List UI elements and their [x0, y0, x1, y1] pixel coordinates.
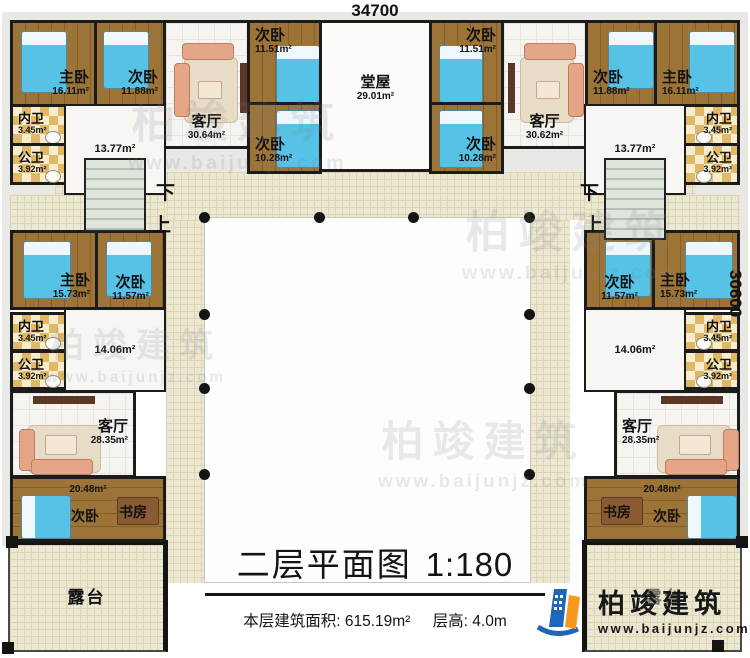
- staircase-right: [604, 158, 666, 240]
- coffee-table-icon: [679, 435, 711, 455]
- room-area: 3.92m²: [18, 372, 47, 382]
- dimension-top: 34700: [0, 1, 750, 21]
- wall-corner: [6, 536, 18, 548]
- tv-cabinet-icon: [33, 396, 95, 404]
- column: [524, 212, 535, 223]
- courtyard: [204, 217, 531, 583]
- room-name: 内卫: [18, 112, 44, 126]
- room-area: 30.64m²: [188, 130, 225, 141]
- room-living-right: 客厅28.35m²: [614, 390, 740, 478]
- column: [199, 309, 210, 320]
- floor-area-value: 615.19m²: [345, 613, 410, 630]
- sofa-icon: [665, 459, 727, 475]
- floor-area-label: 本层建筑面积:: [243, 613, 340, 630]
- stair-up-label: 上: [584, 210, 603, 237]
- room-name: 书房: [119, 505, 147, 519]
- room-study-bedroom-right: 20.48m² 书房 次卧: [584, 476, 740, 542]
- sofa-icon: [174, 63, 190, 117]
- bed-icon: [608, 31, 654, 89]
- room-name: 次卧: [653, 509, 681, 523]
- room-name: 内卫: [706, 112, 732, 126]
- stair-down-label: 下: [156, 178, 175, 205]
- room-bedroom2-left: 次卧11.57m²: [95, 230, 166, 310]
- brand-name: 柏竣建筑: [598, 591, 750, 618]
- floor-height-value: 4.0m: [472, 613, 506, 630]
- tv-cabinet-icon: [240, 63, 247, 113]
- plan-title-text: 二层平面图: [237, 546, 412, 583]
- room-name: 主卧: [662, 70, 692, 86]
- room-bath-inner-right: 内卫3.45m²: [683, 312, 740, 352]
- room-name: 客厅: [622, 419, 652, 435]
- bed-icon: [687, 495, 737, 539]
- plan-subtitle: 本层建筑面积: 615.19m² 层高: 4.0m: [205, 609, 545, 631]
- room-area: 28.35m²: [622, 435, 659, 446]
- bed-icon: [276, 45, 320, 103]
- stair-down-label: 下: [580, 178, 599, 205]
- column: [524, 383, 535, 394]
- wall-corner: [736, 536, 748, 548]
- room-area: 20.48m²: [69, 484, 106, 495]
- room-bedroom3-top-right: 次卧11.51m²: [429, 20, 504, 105]
- coffee-table-icon: [198, 81, 222, 99]
- sofa-icon: [182, 43, 234, 60]
- room-bedroom4-top-right: 次卧10.28m²: [429, 102, 504, 174]
- room-name: 堂屋: [360, 75, 390, 91]
- toilet-icon: [696, 337, 712, 350]
- room-bedroom3-top-left: 次卧11.51m²: [247, 20, 322, 105]
- room-bath-inner-top-left: 内卫3.45m²: [10, 104, 67, 146]
- corridor-right: [529, 220, 570, 583]
- bed-icon: [439, 110, 483, 168]
- room-bedroom2-top-right: 次卧11.88m²: [585, 20, 657, 107]
- room-area: 14.06m²: [615, 344, 656, 356]
- room-name: 次卧: [255, 28, 285, 44]
- terrace-left: 露台: [8, 540, 168, 652]
- wall-corner: [2, 642, 14, 654]
- room-name: 公卫: [18, 151, 44, 165]
- column: [199, 383, 210, 394]
- room-name: 书房: [603, 505, 631, 519]
- room-area: 29.01m²: [357, 91, 394, 102]
- coffee-table-icon: [45, 435, 77, 455]
- tv-cabinet-icon: [661, 396, 723, 404]
- title-block: 二层平面图1:180 本层建筑面积: 615.19m² 层高: 4.0m: [205, 538, 545, 631]
- room-bedroom2-right: 次卧11.57m²: [584, 230, 655, 310]
- room-area: 30.62m²: [526, 130, 563, 141]
- sofa-icon: [568, 63, 584, 117]
- room-bath-public-left: 公卫3.92m²: [10, 350, 67, 390]
- room-area: 3.92m²: [18, 165, 47, 175]
- room-master-bedroom-left: 主卧15.73m²: [10, 230, 98, 310]
- room-bedroom-study-left: 20.48m² 次卧 书房: [10, 476, 166, 542]
- toilet-icon: [45, 337, 61, 350]
- bed-icon: [103, 31, 149, 89]
- room-name: 公卫: [706, 151, 732, 165]
- bed-icon: [21, 31, 67, 93]
- brand-logo-icon: [534, 583, 592, 644]
- bed-icon: [21, 495, 71, 539]
- room-name: 公卫: [18, 358, 44, 372]
- plan-title: 二层平面图1:180: [205, 538, 545, 596]
- bed-icon: [23, 241, 71, 299]
- room-living-top-left: 客厅30.64m²: [163, 20, 250, 149]
- brand-logo: 柏竣建筑 www.baijunjz.com: [534, 583, 750, 644]
- room-name: 次卧: [71, 509, 99, 523]
- floor-height-label: 层高:: [433, 613, 468, 630]
- brand-logo-text: 柏竣建筑 www.baijunjz.com: [598, 591, 750, 636]
- brand-url: www.baijunjz.com: [598, 621, 750, 636]
- column: [199, 212, 210, 223]
- room-name: 客厅: [98, 419, 128, 435]
- room-name: 露台: [68, 589, 106, 607]
- stair-up-label: 上: [152, 210, 171, 237]
- column: [314, 212, 325, 223]
- eave-strip-right: [740, 198, 748, 546]
- bed-icon: [106, 241, 152, 297]
- bed-icon: [439, 45, 483, 103]
- plan-scale: 1:180: [426, 546, 514, 583]
- floor-plan: 主卧16.11m² 次卧11.88m² 客厅30.64m² 次卧11.51m² …: [0, 0, 750, 658]
- corridor-left: [166, 220, 207, 583]
- room-area: 3.45m²: [18, 334, 47, 344]
- room-name: 内卫: [706, 320, 732, 334]
- room-area: 13.77m²: [615, 143, 656, 155]
- column: [524, 469, 535, 480]
- room-bedroom4-top-left: 次卧10.28m²: [247, 102, 322, 174]
- toilet-icon: [696, 375, 712, 388]
- room-bath-public-top-left: 公卫3.92m²: [10, 143, 67, 185]
- room-bath-public-right: 公卫3.92m²: [683, 350, 740, 390]
- room-name: 内卫: [18, 320, 44, 334]
- room-area: 13.77m²: [95, 143, 136, 155]
- room-master-bedroom-top-left: 主卧16.11m²: [10, 20, 97, 107]
- bed-icon: [276, 110, 320, 168]
- toilet-icon: [696, 170, 712, 183]
- staircase-left: [84, 158, 146, 232]
- room-name: 次卧: [466, 28, 496, 44]
- sofa-icon: [31, 459, 93, 475]
- coffee-table-icon: [536, 81, 560, 99]
- column: [408, 212, 419, 223]
- room-living-left: 客厅28.35m²: [10, 390, 136, 478]
- hall-left: 14.06m²: [64, 308, 166, 392]
- toilet-icon: [45, 170, 61, 183]
- room-area: 20.48m²: [643, 484, 680, 495]
- room-living-top-right: 客厅30.62m²: [501, 20, 588, 149]
- tv-cabinet-icon: [508, 63, 515, 113]
- bed-icon: [605, 241, 651, 297]
- room-name: 公卫: [706, 358, 732, 372]
- room-bath-inner-left: 内卫3.45m²: [10, 312, 67, 352]
- bed-icon: [689, 31, 735, 93]
- room-main-hall: 堂屋29.01m²: [319, 20, 432, 172]
- sofa-icon: [524, 43, 576, 60]
- room-area: 3.45m²: [18, 126, 47, 136]
- room-bath-inner-top-right: 内卫3.45m²: [683, 104, 740, 146]
- room-bath-public-top-right: 公卫3.92m²: [683, 143, 740, 185]
- toilet-icon: [45, 375, 61, 388]
- column: [199, 469, 210, 480]
- hall-right: 14.06m²: [584, 308, 686, 392]
- dimension-right: 30600: [725, 270, 745, 317]
- room-master-bedroom-top-right: 主卧16.11m²: [654, 20, 740, 107]
- room-area: 14.06m²: [95, 344, 136, 356]
- eave-strip-left: [2, 198, 10, 546]
- column: [524, 309, 535, 320]
- room-bedroom2-top-left: 次卧11.88m²: [94, 20, 166, 107]
